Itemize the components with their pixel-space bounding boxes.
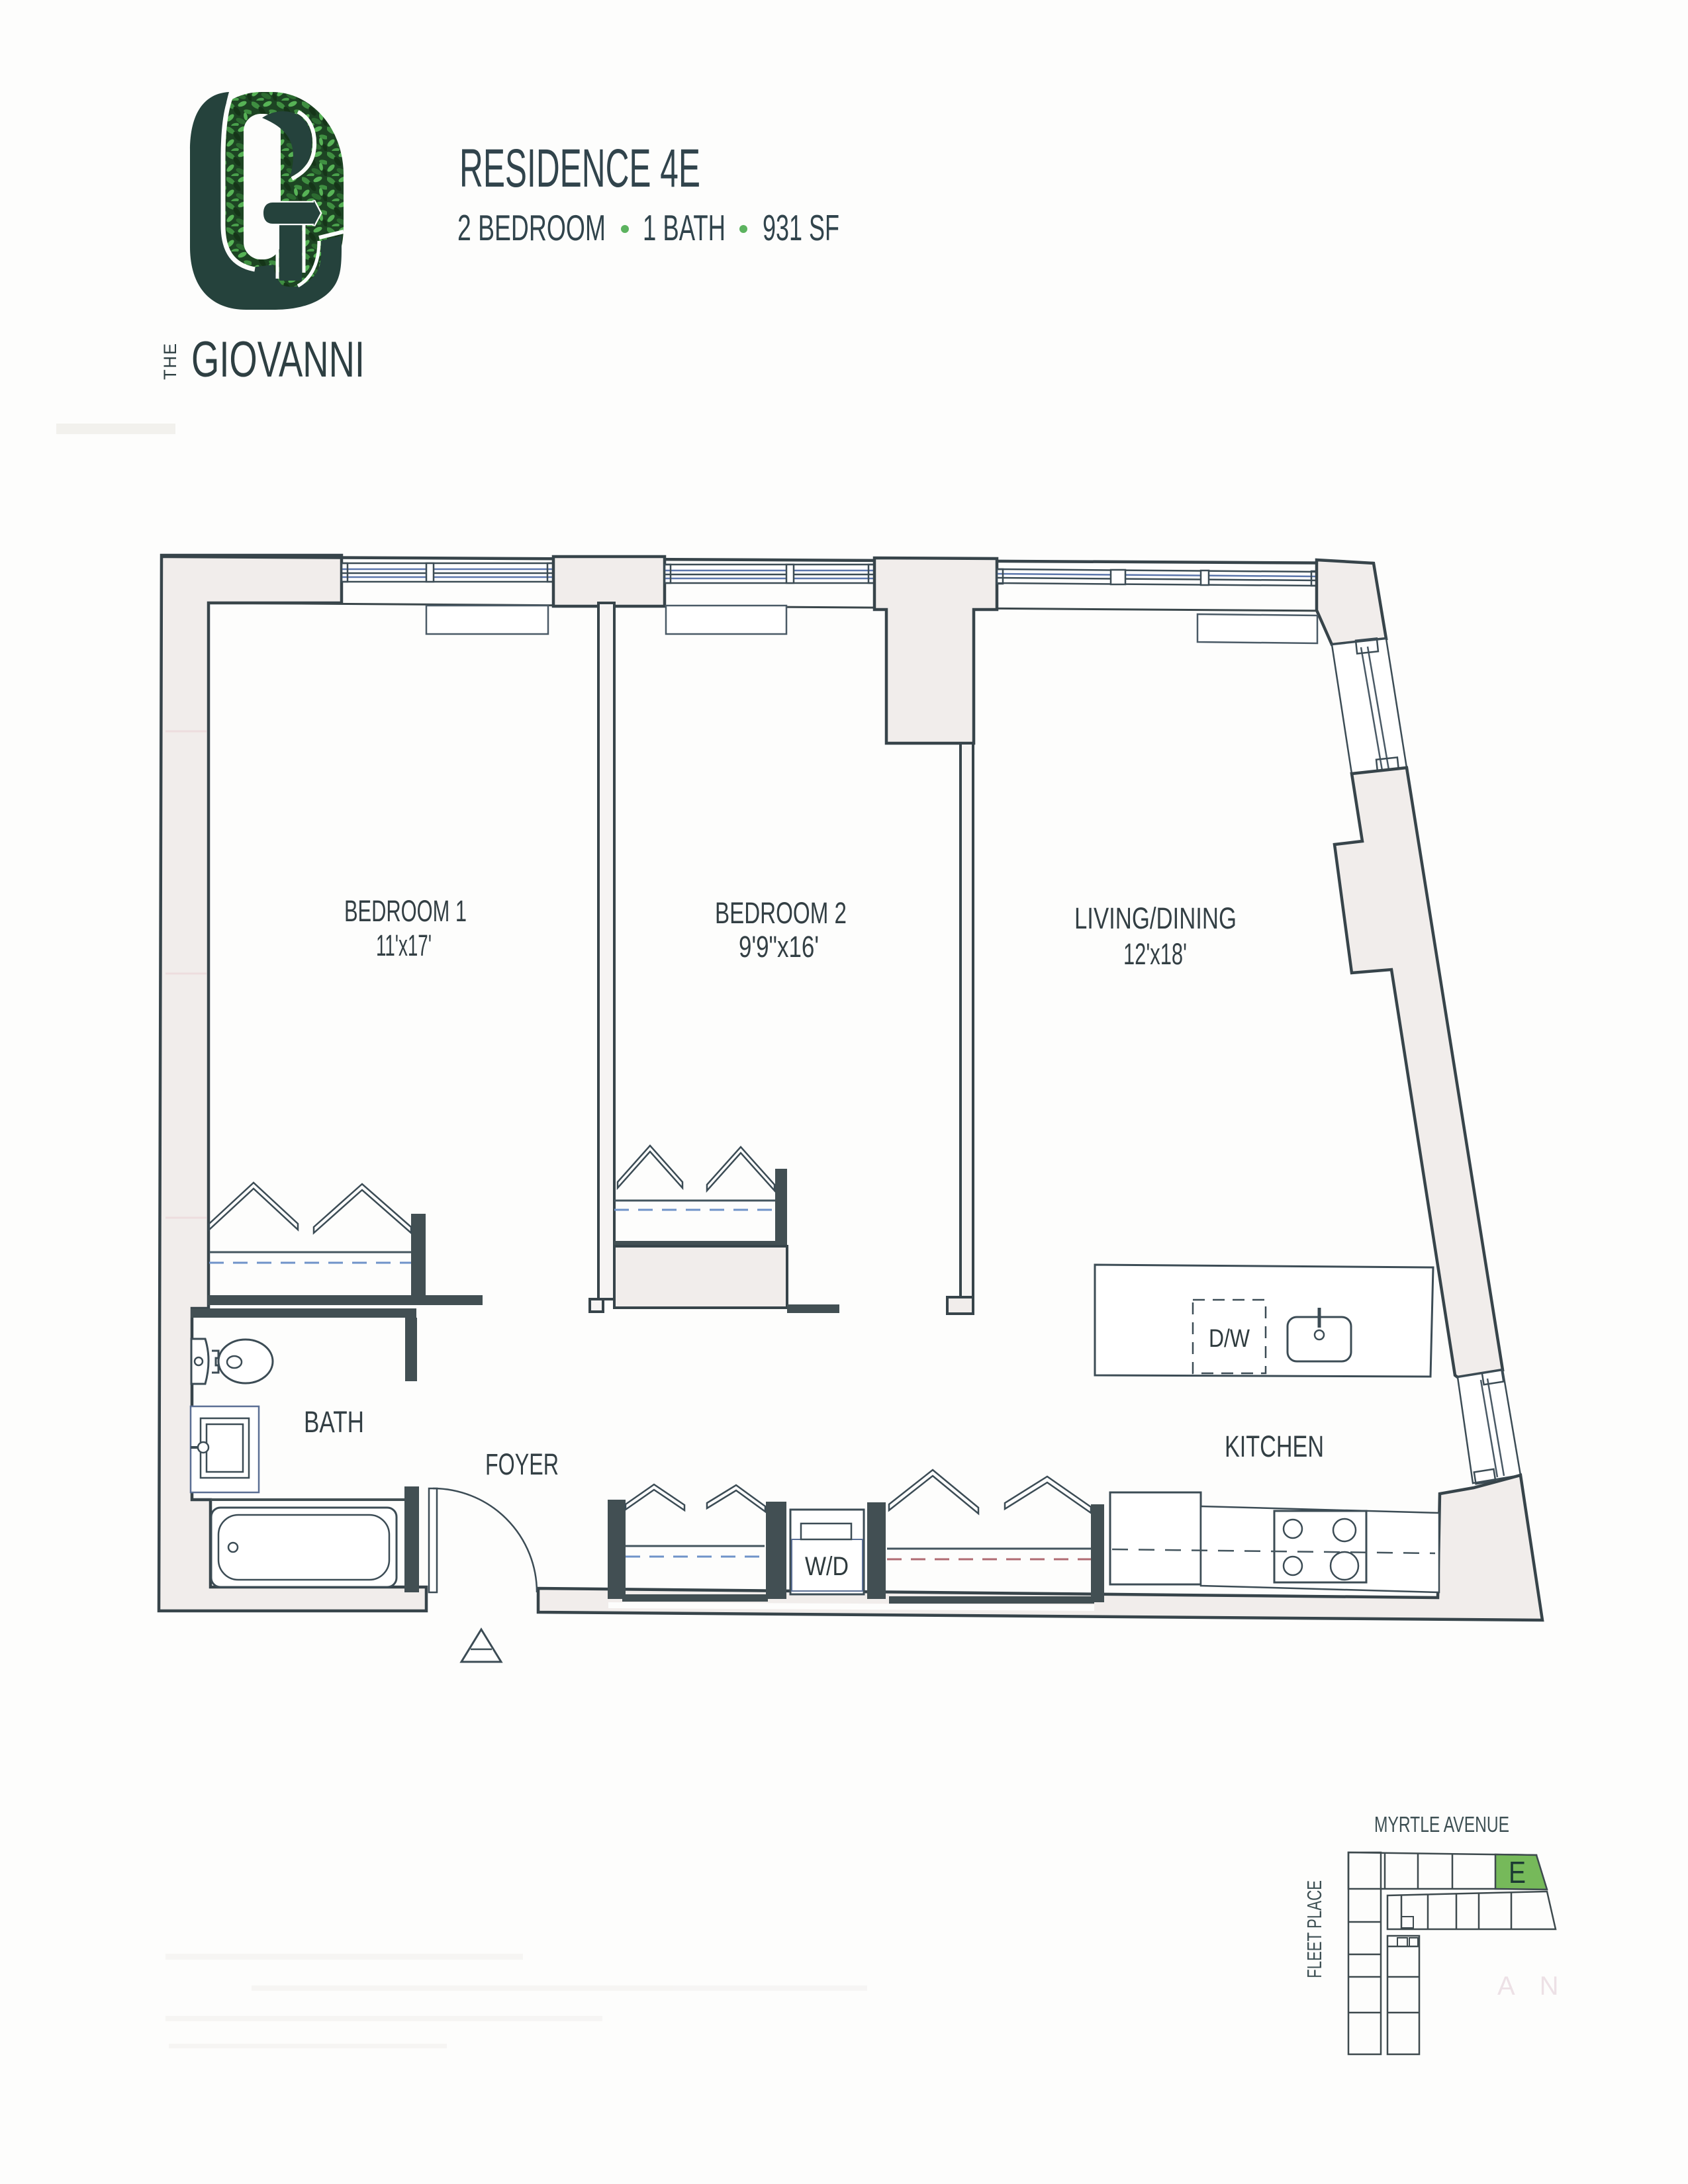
svg-text:LIVING/DINING: LIVING/DINING <box>1074 901 1237 935</box>
svg-text:FLEET PLACE: FLEET PLACE <box>1303 1880 1326 1978</box>
svg-text:E: E <box>1509 1855 1526 1889</box>
svg-text:1 BATH: 1 BATH <box>643 207 726 248</box>
svg-text:FOYER: FOYER <box>485 1447 559 1481</box>
svg-text:D/W: D/W <box>1209 1325 1250 1353</box>
svg-text:GIOVANNI: GIOVANNI <box>191 332 365 388</box>
svg-text:KITCHEN: KITCHEN <box>1225 1430 1324 1463</box>
svg-text:931 SF: 931 SF <box>763 207 839 248</box>
svg-text:BEDROOM 2: BEDROOM 2 <box>715 896 847 930</box>
svg-text:W/D: W/D <box>805 1552 849 1581</box>
svg-text:12'x18': 12'x18' <box>1123 937 1187 971</box>
svg-text:A N: A N <box>1497 1972 1568 2001</box>
svg-text:11'x17': 11'x17' <box>376 929 432 962</box>
svg-text:MYRTLE AVENUE: MYRTLE AVENUE <box>1374 1812 1509 1837</box>
svg-text:9'9"x16': 9'9"x16' <box>739 930 819 964</box>
svg-text:RESIDENCE 4E: RESIDENCE 4E <box>459 138 700 199</box>
svg-text:2 BEDROOM: 2 BEDROOM <box>457 207 606 248</box>
svg-text:BATH: BATH <box>304 1405 364 1439</box>
svg-text:THE: THE <box>160 342 180 380</box>
svg-text:BEDROOM 1: BEDROOM 1 <box>344 894 467 928</box>
